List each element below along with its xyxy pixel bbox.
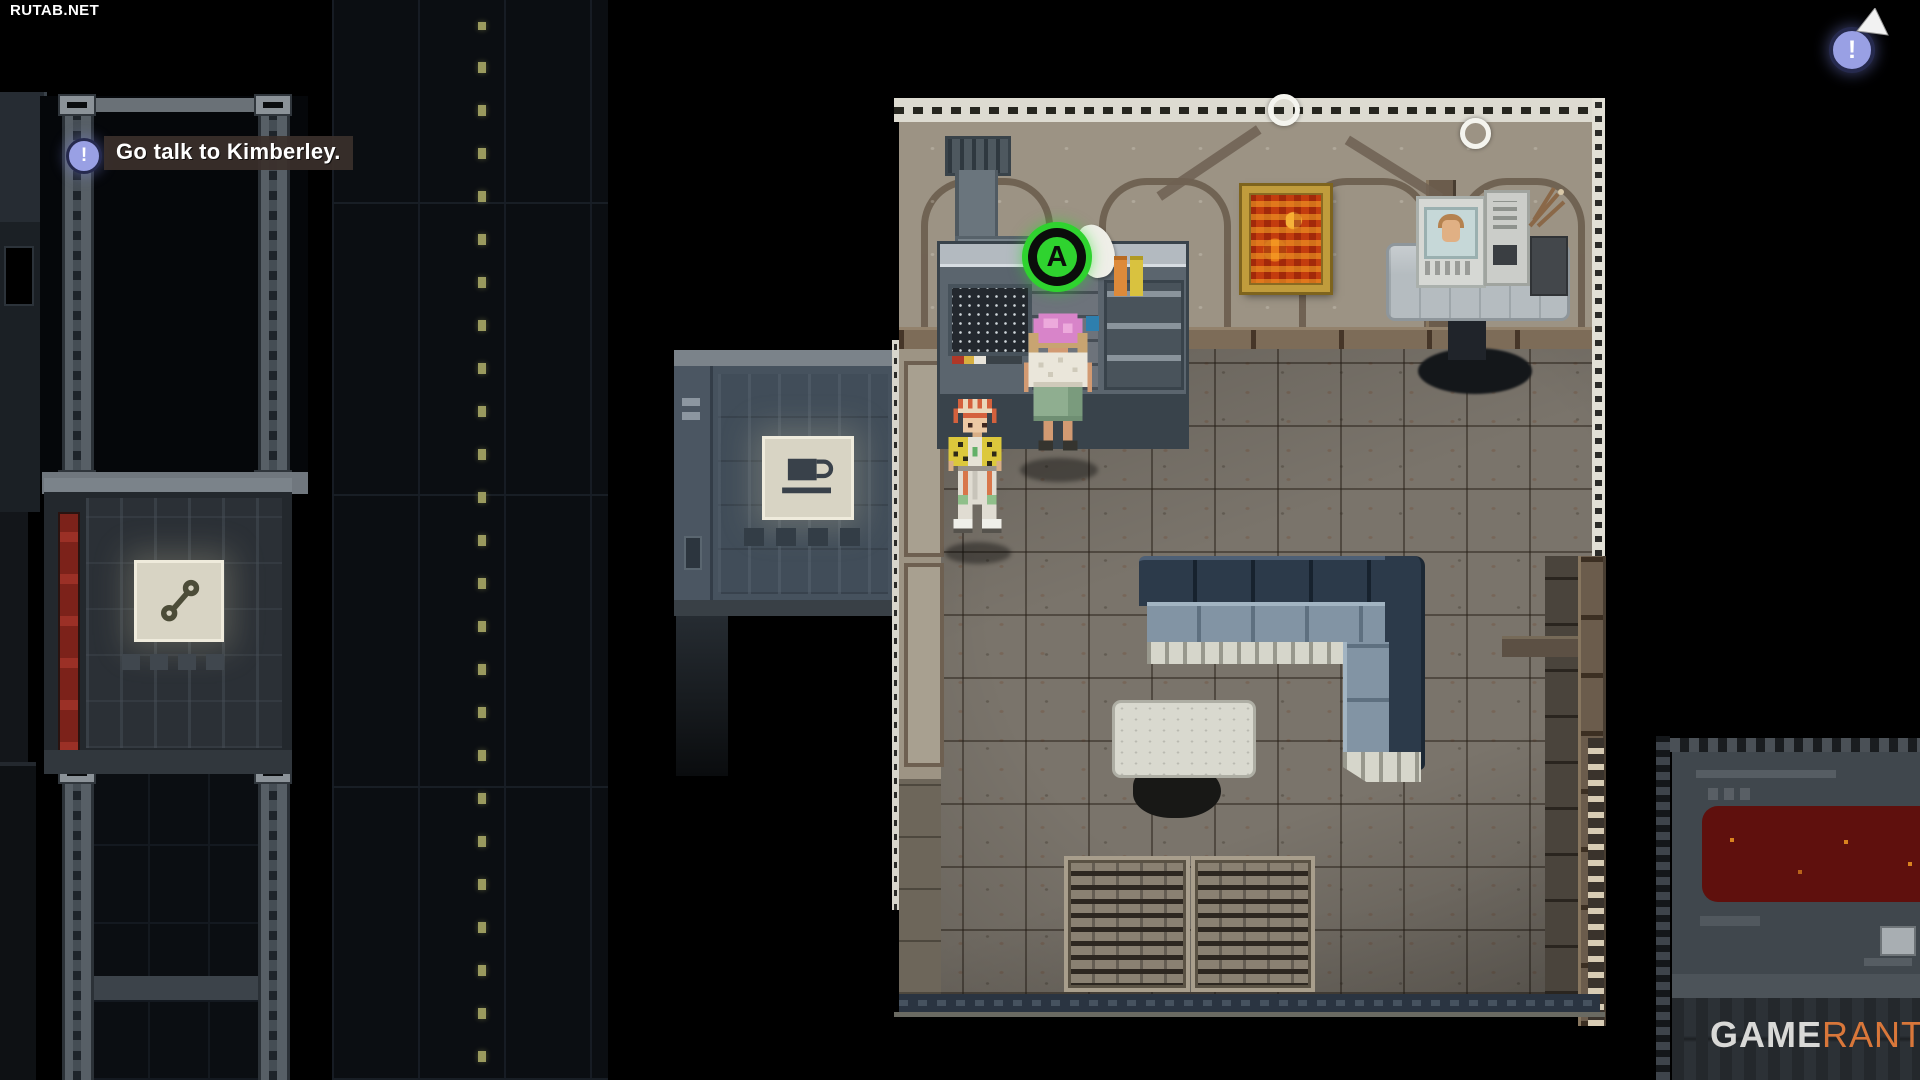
wrench-panel (134, 560, 224, 642)
machine-detail (684, 536, 702, 570)
floor-grate (1191, 856, 1315, 992)
wrench-vending-machine[interactable] (44, 478, 292, 774)
interact-button-prompt[interactable]: A (1022, 222, 1092, 292)
player-character (939, 372, 1011, 560)
room-left-wall (899, 349, 941, 779)
machine-detail (1708, 788, 1752, 800)
couch-cushions-vertical (1343, 642, 1389, 752)
bench-bottle-orange (1114, 256, 1127, 296)
bench-indicator-strip (952, 356, 1022, 364)
pillar-bracket (58, 94, 96, 116)
machine-red-stripe (58, 512, 80, 754)
machine-top-rail (1670, 738, 1920, 752)
button-label: A (1037, 237, 1077, 277)
wall-pipe-stub (1502, 636, 1580, 657)
site-watermark: RUTAB.NET (10, 2, 99, 19)
air-duct-pipe (955, 170, 998, 240)
machine-buttons (122, 654, 232, 670)
brand-accent-text: RANT (1822, 1014, 1920, 1055)
wall-painting (1242, 186, 1330, 292)
desktop-computer (1416, 196, 1486, 288)
objective-text: Go talk to Kimberley. (104, 136, 353, 170)
couch-skirt-corner (1343, 752, 1421, 782)
coffee-cup-icon (779, 453, 837, 504)
bench-drawers (1104, 280, 1184, 390)
machine-base-shadow (676, 616, 728, 776)
machine-light-panel (1880, 926, 1916, 956)
road-lane-dashes (478, 22, 486, 1062)
white-table (1112, 700, 1256, 778)
machine-top-band (44, 478, 292, 492)
objective-exclamation-icon: ! (66, 138, 102, 174)
couch-arm-right (1385, 556, 1425, 770)
left-edge-machine (0, 762, 36, 1080)
bench-bottle-yellow (1130, 256, 1143, 296)
wrench-icon (154, 575, 204, 628)
floor-grate (1064, 856, 1190, 992)
game-screen: A RUTAB.NET ! Go talk to Kimberley. ! GA… (0, 0, 1920, 1080)
dark-room-lower-panels (88, 770, 260, 1080)
room-bottom-outline (894, 1012, 1605, 1017)
coffee-panel (762, 436, 854, 520)
machine-detail (1700, 916, 1760, 926)
room-top-outline (894, 98, 1605, 122)
machine-slot (4, 246, 34, 306)
road (332, 0, 608, 1080)
brand-bold-text: GAME (1710, 1014, 1822, 1055)
couch-back (1139, 556, 1421, 606)
computer-screen (1424, 207, 1478, 259)
machine-buttons (744, 528, 864, 546)
wall-band (84, 976, 260, 1000)
machine-detail (682, 394, 700, 420)
wall-band (64, 98, 286, 112)
machine-bottom-band (674, 600, 896, 616)
room-bottom-edge (899, 994, 1600, 1012)
desk-side-box (1530, 236, 1568, 296)
room-left-wall-lower (899, 779, 941, 994)
door-marker-ring[interactable] (1460, 118, 1491, 149)
machine-top-band (674, 350, 896, 366)
machine-left-rail (1656, 736, 1670, 1080)
machine-detail (1696, 770, 1836, 778)
door-marker-ring[interactable] (1268, 94, 1300, 126)
left-edge-machine (0, 512, 28, 762)
wall-panel (904, 563, 944, 767)
machine-band (1672, 974, 1920, 998)
npc-kimberley[interactable] (1014, 294, 1102, 470)
cursor-arrow-icon (1856, 8, 1890, 40)
room-left-outline (892, 340, 899, 910)
computer-vents (1425, 261, 1471, 275)
pipe-ladder-rungs (1588, 738, 1604, 1026)
coffee-vending-machine[interactable] (674, 350, 896, 610)
brand-watermark: GAMERANT (1710, 1014, 1920, 1056)
pillar-bracket (254, 94, 292, 116)
desk-brush-plant (1524, 180, 1568, 232)
machine-detail (1864, 958, 1912, 966)
portrait-face (1442, 220, 1460, 242)
couch-cushions (1147, 602, 1387, 646)
red-display (1702, 806, 1920, 902)
machine-bottom-band (44, 750, 292, 774)
